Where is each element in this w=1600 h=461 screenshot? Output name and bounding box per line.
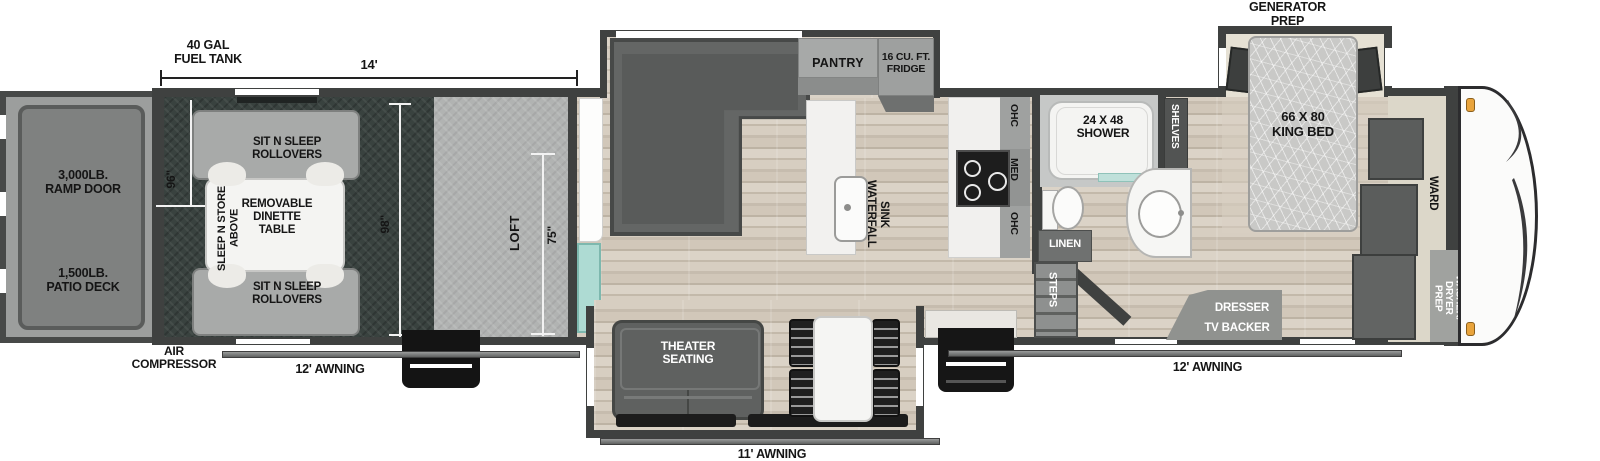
sink-basin <box>834 176 868 242</box>
theater-seat-cushionline <box>624 396 752 399</box>
partition-panel <box>579 98 603 242</box>
ramp-door-label: 3,000LB. RAMP DOOR <box>28 168 138 196</box>
dim-75-tick <box>531 153 555 155</box>
awning-right-label: 12' AWNING <box>1140 360 1275 374</box>
dining-chair <box>872 319 900 367</box>
toilet-bowl <box>1052 186 1084 230</box>
ward-label: WARD <box>1426 176 1439 210</box>
air-compressor-label: AIR COMPRESSOR <box>118 345 230 372</box>
window <box>236 339 310 344</box>
patio-deck-label: 1,500LB. PATIO DECK <box>28 266 138 294</box>
king-bed-label: 66 X 80 KING BED <box>1253 110 1353 139</box>
entry-step-line <box>946 362 1006 366</box>
window <box>916 348 923 406</box>
floorplan: 3,000LB. RAMP DOOR 1,500LB. PATIO DECK 9… <box>0 0 1600 461</box>
dining-table <box>813 316 873 422</box>
dim-14-line <box>160 77 578 79</box>
window <box>616 31 802 38</box>
garage-overhead-bar <box>237 97 317 103</box>
awning-center-label: 11' AWNING <box>712 447 832 461</box>
awning-left-label: 12' AWNING <box>270 362 390 376</box>
fridge-label: 16 CU. FT. FRIDGE <box>874 52 938 76</box>
awning-bar-center <box>600 438 940 445</box>
dim-75-line <box>542 154 544 336</box>
entry-step-line <box>946 380 1006 383</box>
fuel-tank-label: 40 GAL FUEL TANK <box>158 38 258 66</box>
dim-98-tick <box>389 103 411 105</box>
sit-n-sleep-top-label: SIT N SLEEP ROLLOVERS <box>222 136 352 162</box>
front-cap-graphics <box>1458 86 1538 346</box>
washer-dryer-closet <box>1352 254 1416 340</box>
sink-faucet <box>844 204 851 211</box>
ohc-top-label: OHC <box>1007 104 1019 127</box>
garage-divider-wall <box>568 92 577 337</box>
wardrobe-panel <box>1368 118 1424 180</box>
dim-75-label: 75" <box>546 226 559 244</box>
removable-dinette-label: REMOVABLE DINETTE TABLE <box>232 198 322 237</box>
rear-wall <box>152 88 164 345</box>
generator-prep-label: GENERATOR PREP <box>1235 0 1340 28</box>
bench-cushion <box>306 162 344 186</box>
dim-14-tick <box>576 70 578 86</box>
awning-bar-right <box>948 350 1402 357</box>
window <box>587 348 594 406</box>
fridge-base <box>878 96 934 112</box>
dim-75-tick <box>531 333 555 335</box>
stove-burner <box>964 160 981 177</box>
sit-n-sleep-bottom-label: SIT N SLEEP ROLLOVERS <box>222 281 352 307</box>
awning-bar-left <box>222 351 580 358</box>
marker-light <box>1466 322 1475 336</box>
loft-label: LOFT <box>508 215 523 251</box>
slide-floor-mat <box>616 414 736 427</box>
tv-backer-label: TV BACKER <box>1196 322 1278 335</box>
deck-rail-gap <box>0 269 6 293</box>
ohc-bottom-label: OHC <box>1007 212 1019 235</box>
ramp-door-panel <box>18 105 145 330</box>
garage-entry-steps <box>402 330 480 388</box>
dim-98-label: 98" <box>379 215 392 233</box>
garage-step-line <box>410 364 472 368</box>
marker-light <box>1466 98 1475 112</box>
theater-seating-label: THEATER SEATING <box>640 340 736 367</box>
dining-chair <box>872 369 900 417</box>
window <box>1219 48 1226 86</box>
pantry-cabinet-base <box>798 78 878 95</box>
dresser-label: DRESSER <box>1202 302 1282 315</box>
dim-14-tick <box>160 70 162 86</box>
loft-floor <box>434 97 570 337</box>
window <box>235 89 319 95</box>
waterfall-sink-label: WATERFALL SINK <box>864 166 890 262</box>
dim-96-label: 96" <box>165 170 178 188</box>
stove-burner <box>964 184 981 201</box>
pantry-label: PANTRY <box>800 56 876 70</box>
dim-14-label: 14' <box>344 58 394 73</box>
vanity-faucet <box>1178 210 1184 216</box>
window <box>1300 339 1355 344</box>
linen-label: LINEN <box>1038 238 1092 250</box>
deck-rail-gap <box>0 115 6 139</box>
stove-burner <box>988 172 1007 191</box>
window <box>1385 48 1392 86</box>
med-label: MED <box>1007 158 1019 181</box>
vanity-sink <box>1138 190 1182 238</box>
sleep-n-store-label: SLEEP N STORE ABOVE <box>216 172 241 284</box>
shelves-label: SHELVES <box>1169 104 1180 149</box>
dim-98-line <box>399 104 401 337</box>
deck-rail-gap <box>0 192 6 216</box>
shower-label: 24 X 48 SHOWER <box>1058 114 1148 141</box>
steps-label: STEPS <box>1046 272 1058 307</box>
wardrobe-panel <box>1360 184 1418 256</box>
